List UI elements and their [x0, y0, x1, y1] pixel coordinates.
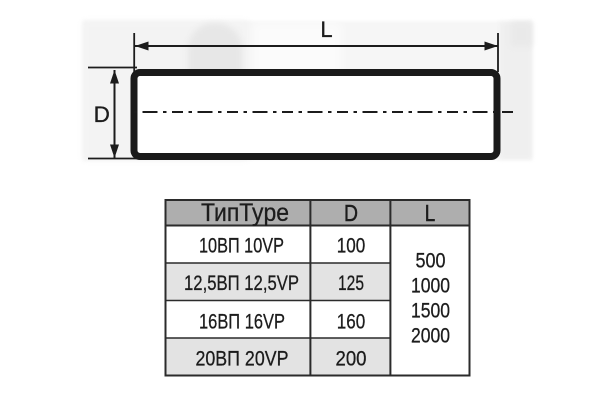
svg-text:D: D — [94, 102, 110, 127]
svg-text:ТипType: ТипType — [201, 199, 289, 227]
svg-text:125: 125 — [338, 271, 364, 295]
svg-text:160: 160 — [337, 310, 366, 334]
svg-text:D: D — [344, 200, 358, 226]
svg-text:500: 500 — [416, 249, 446, 273]
svg-text:10ВП 10VP: 10ВП 10VP — [199, 233, 284, 257]
svg-text:1500: 1500 — [411, 299, 450, 323]
svg-text:2000: 2000 — [411, 324, 450, 348]
svg-text:L: L — [425, 200, 436, 226]
svg-text:L: L — [320, 17, 332, 42]
svg-text:12,5ВП 12,5VP: 12,5ВП 12,5VP — [184, 271, 299, 295]
svg-text:100: 100 — [337, 233, 366, 257]
svg-text:20ВП 20VP: 20ВП 20VP — [196, 347, 289, 371]
svg-text:1000: 1000 — [411, 274, 450, 298]
svg-text:200: 200 — [336, 347, 367, 371]
svg-text:16ВП 16VP: 16ВП 16VP — [199, 310, 285, 334]
